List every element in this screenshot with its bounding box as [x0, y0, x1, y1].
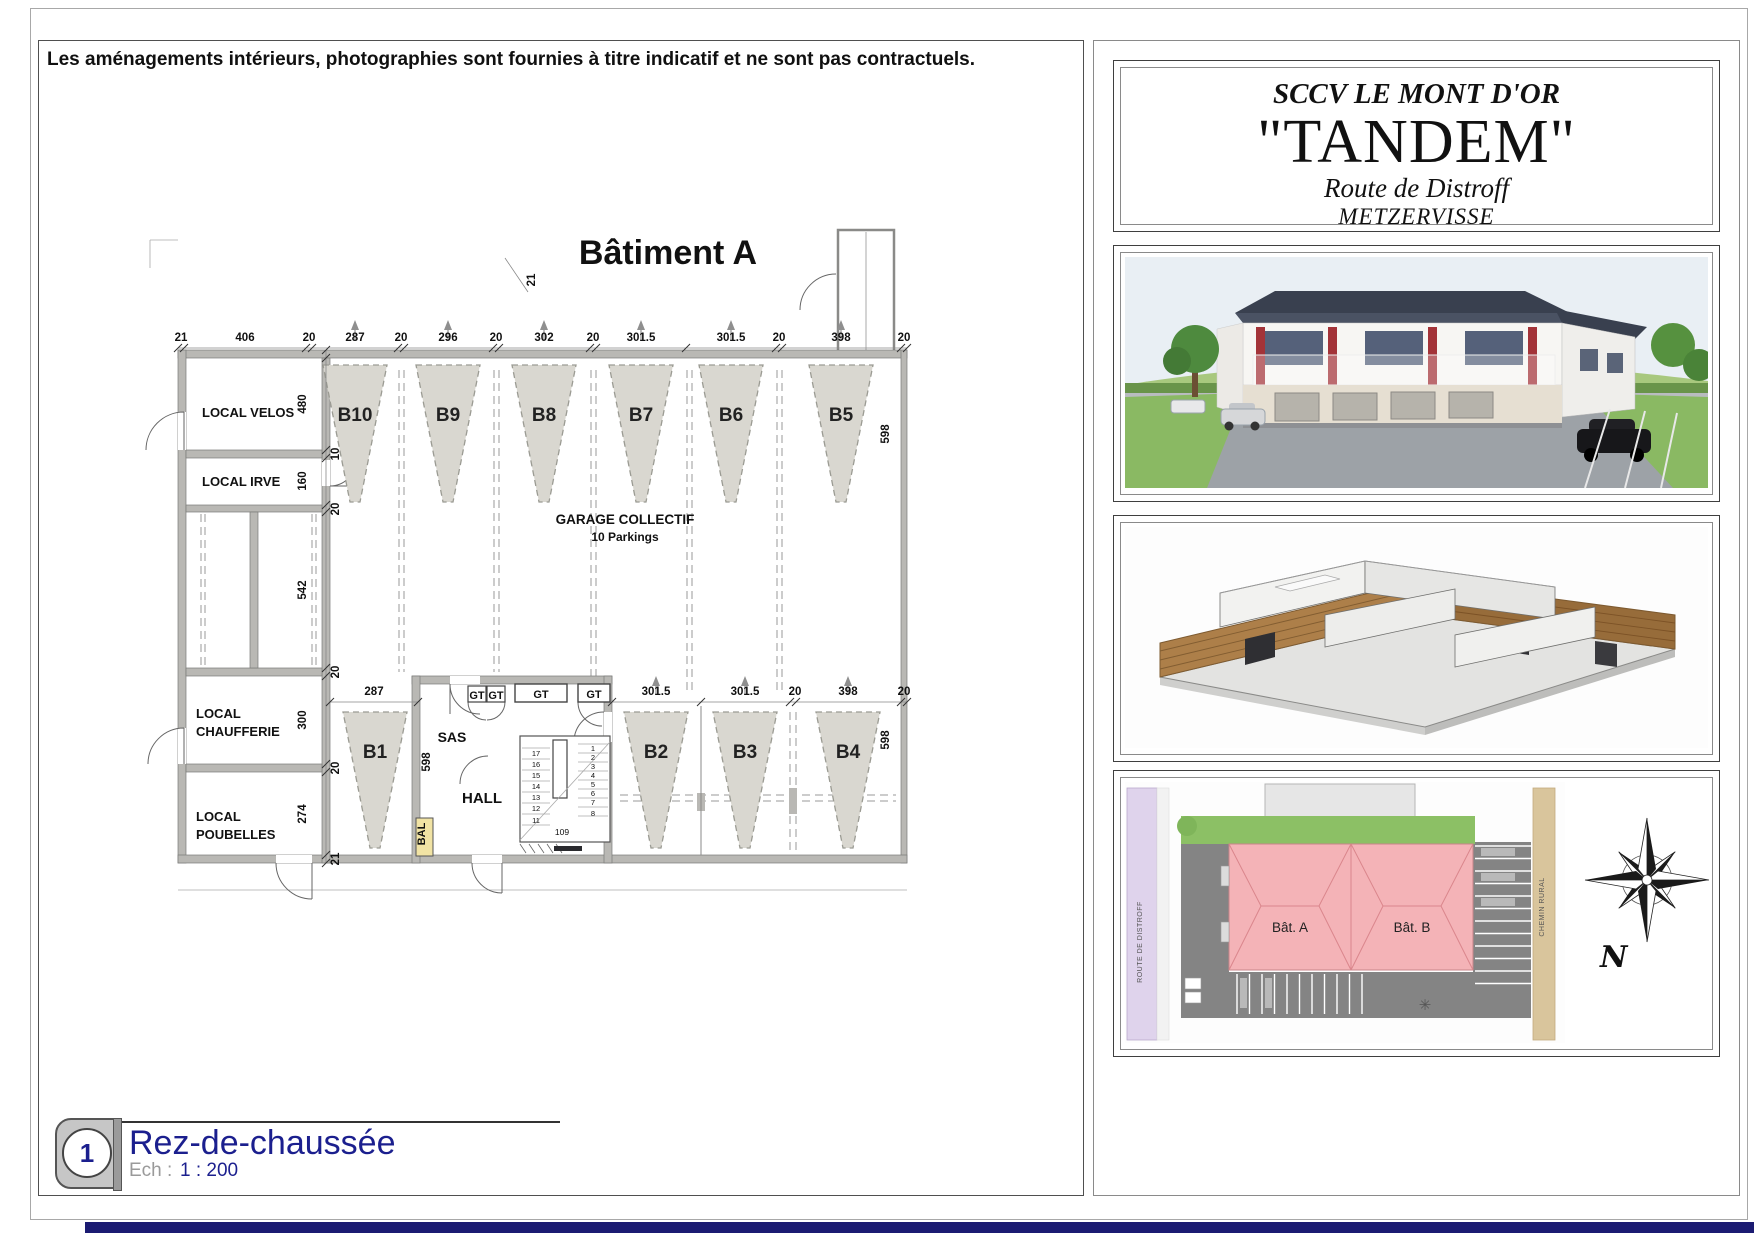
- dim: 301.5: [731, 686, 760, 698]
- step-no: 4: [591, 771, 595, 780]
- dim: 480: [297, 394, 309, 413]
- step-no: 2: [591, 753, 595, 762]
- parking-label: B6: [719, 405, 743, 426]
- wall-dim-leader: 21: [505, 258, 538, 292]
- dim: 287: [364, 686, 383, 698]
- dim: 406: [235, 332, 254, 344]
- project-title-inner-frame: SCCV LE MONT D'OR "TANDEM" Route de Dist…: [1120, 67, 1713, 225]
- plan-title: Bâtiment A: [579, 234, 757, 272]
- road-right: CHEMIN RURAL: [1533, 788, 1555, 1040]
- project-city: METZERVISSE: [1121, 204, 1712, 230]
- dim: 296: [438, 332, 457, 344]
- step-no: 3: [591, 762, 595, 771]
- tree-symbol-icon: ✳: [1419, 997, 1432, 1014]
- dim: 10: [330, 448, 342, 461]
- parking-label: B3: [733, 742, 757, 763]
- dim: 300: [297, 710, 309, 729]
- dim: 20: [490, 332, 503, 344]
- road-left: ROUTE DE DISTROFF: [1127, 788, 1169, 1040]
- room-label-irve: LOCAL IRVE: [202, 474, 281, 489]
- neighbor-building: [1265, 784, 1415, 818]
- dim: 20: [898, 686, 911, 698]
- plan-sheet: { "page": { "disclaimer": "Les aménageme…: [0, 0, 1754, 1240]
- dim: 20: [898, 332, 911, 344]
- dim: 20: [587, 332, 600, 344]
- dim: 542: [297, 580, 309, 599]
- dim: 301.5: [717, 332, 746, 344]
- parking-label: B4: [836, 742, 861, 763]
- dim: 20: [395, 332, 408, 344]
- sheet-index-badge: 1: [62, 1128, 112, 1178]
- parking-label: B2: [644, 742, 668, 763]
- dim-string-top: 21 406 20 287 20 296 20 302 20 301.5 301…: [174, 332, 911, 352]
- dim: 301.5: [627, 332, 656, 344]
- bal-label: BAL: [416, 822, 428, 845]
- dim: 20: [330, 666, 342, 679]
- dim: 302: [534, 332, 553, 344]
- north-label: N: [1599, 940, 1629, 975]
- dim: 398: [831, 332, 851, 344]
- step-no: 11: [532, 816, 540, 825]
- step-no: 17: [532, 749, 540, 758]
- dim-depth: 598: [880, 424, 892, 444]
- gt-label: GT: [469, 690, 485, 702]
- stair-dim: 109: [555, 827, 569, 837]
- site-buildings: [1221, 844, 1473, 970]
- room-label-hall: HALL: [462, 790, 502, 807]
- room-label-chaufferie: LOCAL: [196, 706, 241, 721]
- footer-accent-bar: [85, 1222, 1754, 1233]
- room-label-velos: LOCAL VELOS: [202, 405, 295, 420]
- room-label-sas: SAS: [438, 729, 467, 745]
- dim: 20: [303, 332, 316, 344]
- parking-label: B10: [338, 405, 373, 426]
- step-no: 12: [532, 804, 540, 813]
- step-no: 15: [532, 771, 540, 780]
- floor-plan: Bâtiment A: [38, 40, 1084, 1196]
- green-strip: [1181, 816, 1475, 844]
- road-right-label: CHEMIN RURAL: [1539, 877, 1546, 936]
- parking-label: B5: [829, 405, 854, 426]
- step-no: 16: [532, 760, 540, 769]
- exterior-render-image: [1125, 257, 1708, 488]
- step-no: 5: [591, 780, 595, 789]
- step-no: 1: [591, 744, 595, 753]
- mailbox-bal: BAL: [416, 818, 433, 856]
- step-no: 14: [532, 782, 540, 791]
- utility-box: [1185, 992, 1201, 1003]
- dim: 20: [330, 503, 342, 516]
- room-label-chaufferie: CHAUFFERIE: [196, 724, 280, 739]
- structural-render-image: [1125, 527, 1708, 748]
- floor-title: Rez-de-chaussée: [129, 1124, 395, 1163]
- compass-rose-icon: N: [1572, 795, 1722, 975]
- room-label-poubelles: LOCAL: [196, 809, 241, 824]
- parking-label: B7: [629, 405, 653, 426]
- parking-label: B8: [532, 405, 556, 426]
- dim: 301.5: [642, 686, 671, 698]
- project-name: "TANDEM": [1121, 111, 1712, 173]
- gt-label: GT: [488, 690, 504, 702]
- dim: 274: [297, 804, 309, 824]
- gt-label: GT: [586, 689, 602, 701]
- parking-label: B1: [363, 742, 388, 763]
- dim: 398: [838, 686, 858, 698]
- scale-label: Ech :: [129, 1160, 172, 1182]
- utility-box: [1185, 978, 1201, 989]
- dim-depth: 598: [421, 752, 433, 772]
- dim: 287: [345, 332, 364, 344]
- company-name: SCCV LE MONT D'OR: [1121, 78, 1712, 111]
- gt-label: GT: [533, 689, 549, 701]
- dim: 21: [330, 852, 342, 865]
- garage-sublabel: 10 Parkings: [591, 530, 659, 544]
- green-bush: [1177, 816, 1197, 836]
- building-a-label: Bât. A: [1272, 920, 1308, 935]
- dim-depth: 598: [880, 730, 892, 750]
- scale-value: 1 : 200: [180, 1160, 238, 1182]
- step-no: 7: [591, 798, 595, 807]
- step-no: 6: [591, 789, 595, 798]
- garage-label: GARAGE COLLECTIF: [556, 512, 695, 527]
- site-plan-image: ROUTE DE DISTROFF CHEMIN RURAL Bât. A Bâ…: [1125, 782, 1565, 1043]
- parking-label: B9: [436, 405, 460, 426]
- dim: 20: [789, 686, 802, 698]
- step-no: 8: [591, 809, 595, 818]
- dim: 21: [526, 273, 538, 286]
- project-street: Route de Distroff: [1121, 173, 1712, 204]
- dim: 20: [330, 762, 342, 775]
- dim: 160: [297, 471, 309, 490]
- parking-cones-top: [323, 365, 873, 502]
- footer-tab-bar: [113, 1118, 122, 1191]
- building-b-label: Bât. B: [1394, 920, 1431, 935]
- road-left-label: ROUTE DE DISTROFF: [1137, 901, 1144, 983]
- footer-rule: [117, 1121, 560, 1123]
- dim: 21: [175, 332, 188, 344]
- project-title-panel: SCCV LE MONT D'OR "TANDEM" Route de Dist…: [1113, 60, 1720, 232]
- step-no: 13: [532, 793, 540, 802]
- room-label-poubelles: POUBELLES: [196, 827, 276, 842]
- dim: 20: [773, 332, 786, 344]
